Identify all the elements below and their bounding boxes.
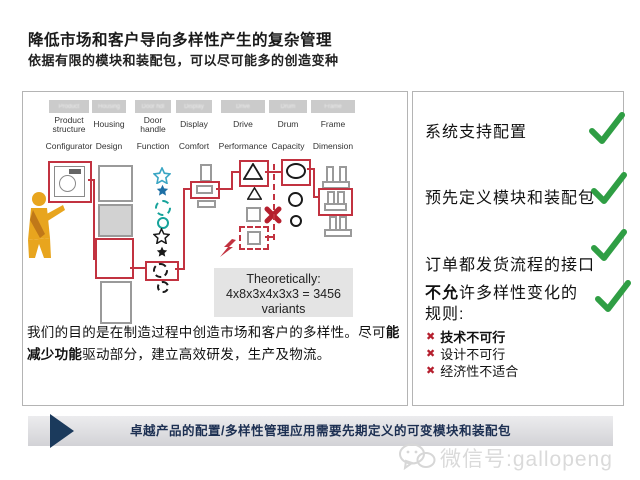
footer-arrow-icon (50, 414, 74, 448)
drive-square-variant (246, 207, 261, 222)
frame-variant-selected (318, 188, 353, 216)
item-4-bold: 不允 (425, 285, 459, 302)
housing-variant-2 (98, 204, 133, 237)
connector-line (93, 258, 97, 260)
connector-line (183, 188, 185, 270)
checklist-item-2: 预先定义模块和装配包 (425, 184, 605, 208)
x-bullet-icon: ✖ (426, 364, 435, 377)
footer-text: 卓越产品的配置/多样性管理应用需要先期定义的可变模块和装配包 (28, 416, 613, 446)
star-filled-blue-icon (156, 184, 169, 196)
checklist-item-3: 订单都发货流程的接口 (425, 251, 605, 275)
ghost-header-5: Drive (221, 100, 265, 113)
checklist-item-4: 不允许多样性变化的规则: (425, 283, 589, 325)
connector-line (231, 171, 239, 173)
caption-part-1: 我们的目的是在制造过程中创造市场和客户的多样性。尽可 (27, 325, 386, 340)
ghost-header-1: Product (49, 100, 89, 113)
connector-line (313, 168, 315, 198)
lightning-bolt-icon (220, 239, 236, 258)
triangle-large-icon (243, 163, 263, 180)
ghost-header-3: Door hdl (135, 100, 171, 113)
rule-text-3: 经济性不适合 (440, 361, 518, 380)
drive-notallowed-inner (247, 231, 261, 245)
connector-line (130, 267, 145, 269)
checklist-item-1: 系统支持配置 (425, 118, 595, 142)
x-bullet-icon: ✖ (426, 347, 435, 360)
slide: 降低市场和客户导向多样性产生的复杂管理 依据有限的模块和装配包，可以尽可能多的创… (0, 0, 640, 480)
theory-line-2: 4x8x3x4x3x3 = 3456 (214, 287, 353, 302)
page-subtitle: 依据有限的模块和装配包，可以尽可能多的创造变种 (28, 50, 588, 69)
checkmark-icon (590, 172, 628, 205)
wechat-icon (398, 443, 436, 471)
theoretical-variants-box: Theoretically: 4x8x3x4x3x3 = 3456 varian… (214, 268, 353, 317)
page-title: 降低市场和客户导向多样性产生的复杂管理 (28, 28, 588, 50)
connector-line (93, 179, 95, 260)
star-filled-black-icon (156, 246, 168, 257)
connector-line (231, 171, 233, 190)
circle-small-icon (290, 215, 302, 227)
column-name-frame: Frame (305, 113, 361, 137)
rule-item-3: ✖ 经济性不适合 (426, 361, 518, 380)
connector-dashed-line (273, 164, 275, 240)
checkmark-icon (590, 229, 628, 262)
star-outline-black-icon (153, 228, 170, 244)
gear-outline-teal-icon (155, 200, 171, 216)
column-name-door-handle: Door handle (136, 113, 170, 137)
diagram-caption: 我们的目的是在制造过程中创造市场和客户的多样性。尽可能减少功能驱动部分，建立高效… (27, 322, 401, 365)
housing-variant-1 (98, 165, 133, 202)
ghost-header-7: Frame (311, 100, 355, 113)
washer-control-panel (69, 169, 81, 174)
watermark-text: 微信号:gallopeng (440, 443, 613, 473)
gear-small-black-icon (157, 281, 169, 293)
ghost-header-2: Housing (92, 100, 126, 113)
checkmark-icon (588, 112, 626, 145)
star-outline-cyan-icon (153, 167, 171, 184)
connector-dashed-line (265, 236, 274, 238)
circle-medium-icon (288, 192, 303, 207)
caption-part-3: 驱动部分，建立高效研发，生产及物流。 (82, 347, 330, 362)
frame-mid-bar (324, 203, 347, 211)
housing-variant-4 (100, 281, 132, 324)
connector-line (183, 188, 190, 190)
ghost-header-6: Drum (269, 100, 307, 113)
gear-outline-black-icon (153, 263, 168, 278)
display-variant-1 (200, 164, 212, 182)
footer-bar: 卓越产品的配置/多样性管理应用需要先期定义的可变模块和装配包 (28, 416, 613, 446)
ellipse-large-icon (286, 163, 306, 179)
theory-line-3: variants (214, 302, 353, 317)
checkmark-icon (594, 280, 632, 313)
ghost-header-4: Display (176, 100, 212, 113)
theory-line-1: Theoretically: (214, 272, 353, 287)
display-selected-inner (196, 185, 213, 194)
column-name-housing: Housing (81, 113, 137, 137)
triangle-small-icon (247, 187, 262, 200)
column-attr-dimension: Dimension (298, 141, 368, 151)
housing-variant-selected (95, 238, 134, 279)
frame-bot-bar (324, 229, 352, 237)
display-variant-3 (197, 200, 216, 208)
washer-door (59, 175, 76, 192)
connector-line (313, 196, 318, 198)
column-name-display: Display (166, 113, 222, 137)
x-bullet-icon: ✖ (426, 330, 435, 343)
